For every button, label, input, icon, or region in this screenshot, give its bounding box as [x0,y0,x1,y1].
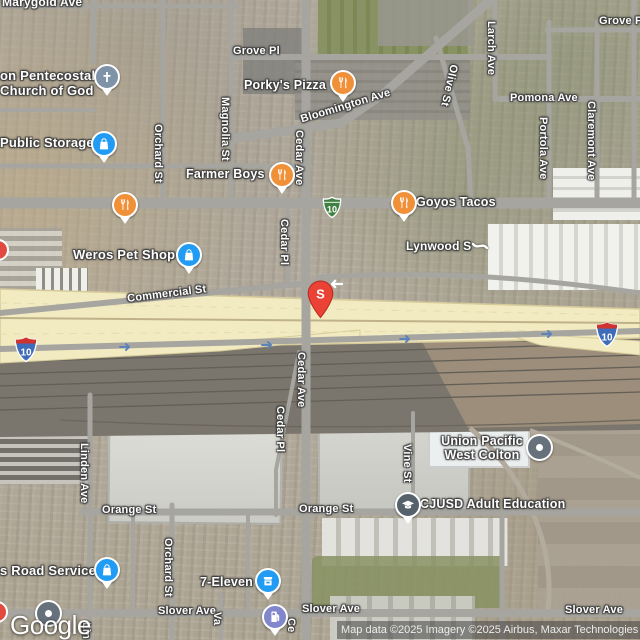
poi-label-cjusd[interactable]: CJUSD Adult Education [420,498,565,510]
shopping-bag-icon [182,248,196,262]
street-label-vine: Vine St [401,444,413,483]
street-label-orchard: Orchard St [162,538,174,597]
public-storage-pin[interactable] [91,131,117,165]
svg-text:10: 10 [601,333,613,344]
poi-label-seven-eleven[interactable]: 7-Eleven [200,576,253,588]
fork-knife-icon [118,198,132,212]
street-label-cedar-pl: Cedar Pl [278,219,290,265]
street-label-linden: Linden Ave [78,443,90,503]
gas-station-pin[interactable] [262,604,288,638]
street-label-grove-pl: Grove Pl [233,45,280,57]
street-label-cedar-pl: Cedar Pl [274,406,286,452]
seven-eleven-pin[interactable] [255,568,281,602]
map-canvas[interactable]: 10 10 10 Marygold Ave Grove Pl Grove Pl … [0,0,640,640]
union-pacific-pin[interactable] [526,434,553,461]
poi-label-road-service[interactable]: s Road Service [0,565,96,577]
church-pin[interactable] [94,64,120,98]
poi-label-church[interactable]: on PentecostalChurch of God [0,68,95,98]
business-10-shield: 10 [322,196,342,219]
fork-knife-icon [397,196,411,210]
street-label-slover: Slover Ave [158,605,216,617]
s-marker-pin[interactable]: S [307,280,334,319]
street-label-cedar-ave: Cedar Ave [295,352,307,407]
street-label-claremont: Claremont Ave [585,101,597,180]
cjusd-pin[interactable] [395,492,421,526]
poi-label-goyos-tacos[interactable]: Goyos Tacos [416,196,496,208]
street-label-pomona: Pomona Ave [510,92,578,104]
svg-text:10: 10 [327,205,337,215]
cross-icon [100,70,114,84]
fork-knife-icon [275,168,289,182]
road-service-pin[interactable] [94,557,120,591]
poi-label-union-pacific[interactable]: Union PacificWest Colton [437,434,527,462]
street-label-orchard: Orchard St [152,124,164,183]
weros-pet-shop-pin[interactable] [176,242,202,276]
goyos-tacos-pin[interactable] [391,190,417,224]
google-logo[interactable]: Google [10,610,91,640]
poi-label-farmer-boys[interactable]: Farmer Boys [186,168,265,180]
street-label-grove-pl: Grove Pl [599,15,640,27]
poi-label-weros-pet-shop[interactable]: Weros Pet Shop [73,249,175,261]
street-label-magnolia: Magnolia St [219,97,231,161]
street-label-partial-va: Va [211,612,223,625]
interstate-10-shield: 10 [595,321,619,348]
street-label-slover: Slover Ave [565,604,623,616]
street-label-orange: Orange St [102,504,156,516]
street-label-portola: Portola Ave [537,117,549,180]
svg-text:S: S [316,287,325,302]
street-label-slover: Slover Ave [302,603,360,615]
poi-label-porkys-pizza[interactable]: Porky's Pizza [244,79,326,91]
street-label-marygold: Marygold Ave [2,0,82,8]
street-label-lynwood: Lynwood S [406,240,488,252]
shopping-bag-icon [100,563,114,577]
graduation-cap-icon [401,498,415,512]
map-attribution: Map data ©2025 Imagery ©2025 Airbus, Max… [337,621,640,639]
shopping-bag-icon [97,137,111,151]
storefront-icon [261,574,275,588]
poi-label-public-storage[interactable]: Public Storage [0,137,94,149]
porkys-pizza-pin[interactable] [330,70,356,104]
svg-text:10: 10 [20,348,32,359]
restaurant-pin[interactable] [112,192,138,226]
street-label-larch: Larch Ave [485,21,497,75]
gas-pump-icon [268,610,282,624]
interstate-10-shield: 10 [14,336,38,363]
street-label-orange: Orange St [299,503,353,515]
fork-knife-icon [336,76,350,90]
farmer-boys-pin[interactable] [269,162,295,196]
curve-icon [472,241,488,251]
